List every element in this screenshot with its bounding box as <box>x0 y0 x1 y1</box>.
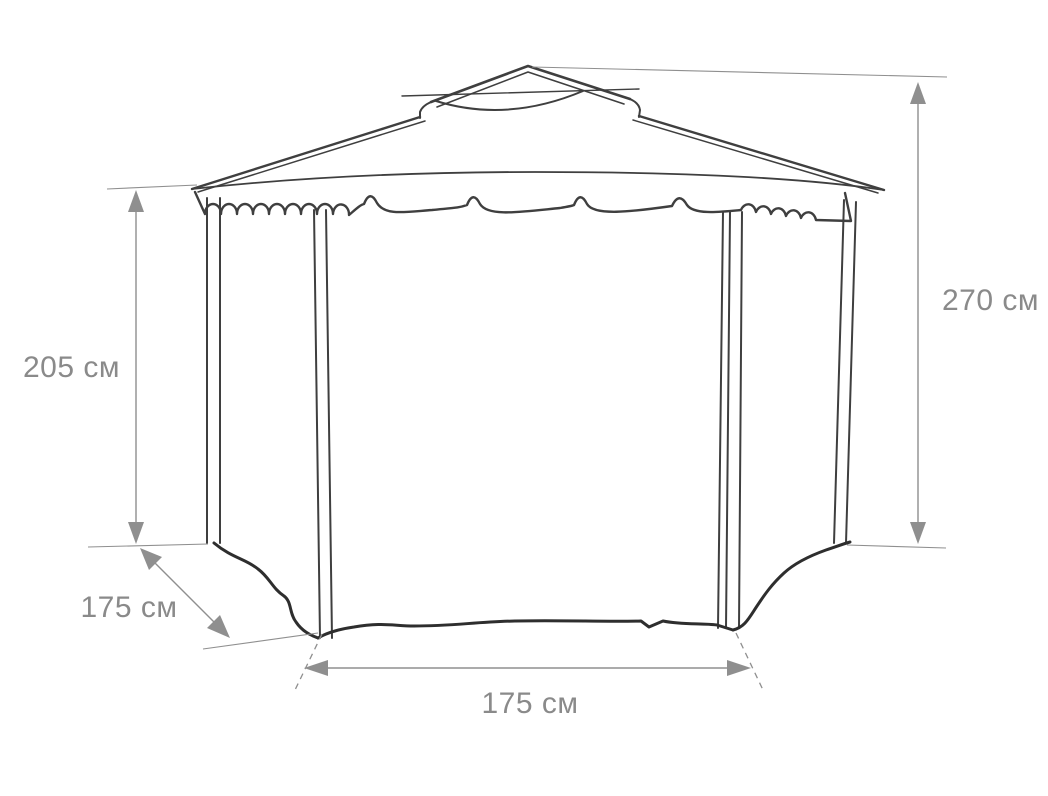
roof-eave-edge <box>192 172 884 190</box>
cap-base-line <box>402 89 639 96</box>
extension-line <box>532 67 947 77</box>
posts <box>207 198 856 638</box>
extension-line <box>847 545 946 548</box>
arrow-left-icon <box>304 660 328 676</box>
dimension-front-width <box>295 633 763 690</box>
arrow-down-icon <box>910 522 926 544</box>
arrow-right-icon <box>727 660 751 676</box>
dimension-label-height-right: 270 см <box>942 284 1039 317</box>
roof-main <box>192 116 884 193</box>
extension-line <box>107 185 197 189</box>
arrow-down-icon <box>128 522 144 544</box>
dimension-label-height-left: 205 см <box>23 351 120 384</box>
curtain-bottom-right <box>733 542 850 630</box>
gazebo-dimension-drawing: 205 см 270 см 175 см 175 см <box>0 0 1048 796</box>
curtain-bottom-front <box>318 621 733 638</box>
extension-line <box>88 544 208 547</box>
dimension-label-front-width: 175 см <box>481 687 578 720</box>
valance <box>195 192 851 221</box>
arrow-up-icon <box>128 190 144 212</box>
post-front-left <box>207 198 220 543</box>
roof-cap <box>402 66 640 118</box>
curtain-bottom-left <box>214 543 318 638</box>
dimension-label-side-depth: 175 см <box>80 591 177 624</box>
post-front-right <box>834 200 856 543</box>
extension-line <box>203 633 318 649</box>
extension-line-dashed <box>736 633 763 690</box>
diagram-canvas: 205 см 270 см 175 см 175 см <box>0 0 1048 796</box>
arrow-up-icon <box>910 82 926 104</box>
curtain-bottom-edges <box>214 542 850 638</box>
gazebo-drawing <box>192 66 884 638</box>
dimensions <box>88 67 947 690</box>
extension-line-dashed <box>295 634 322 690</box>
post-inner-right <box>718 212 742 628</box>
post-inner-left <box>314 210 332 638</box>
